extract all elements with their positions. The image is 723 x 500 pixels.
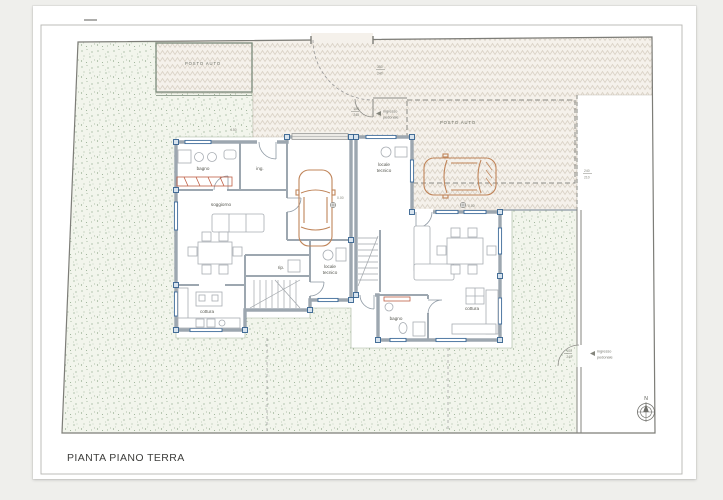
misc-dim-label: 4.50 xyxy=(230,128,237,132)
gate-top-label-1: ingresso xyxy=(383,110,397,114)
left-unit: bagno ing. soggiorno cottura rip. locale… xyxy=(174,134,351,332)
room-label-bagno-left: bagno xyxy=(197,166,210,171)
carport-dim-width: 240 xyxy=(584,169,590,173)
gate-top-label-2: pedonale xyxy=(383,116,399,120)
carport-dim: 240 210 xyxy=(583,169,592,180)
north-needle-icon xyxy=(643,404,649,412)
gate-right-height: 240 xyxy=(566,355,572,359)
driveway-gate-height: 240 xyxy=(377,72,383,76)
parking-left-label: POSTO AUTO xyxy=(185,61,221,66)
gate-top-height: 240 xyxy=(353,113,359,117)
room-label-rip: rip. xyxy=(278,265,284,270)
parking-right-label: POSTO AUTO xyxy=(440,120,476,125)
gate-right-label-2: pedonale xyxy=(597,356,613,360)
room-label-locale-left-2: tecnico xyxy=(323,270,338,275)
north-label: N xyxy=(644,396,648,402)
level-right-value: 0.00 xyxy=(468,204,475,208)
room-label-locale-right-2: tecnico xyxy=(377,168,392,173)
driveway-gate-width: 350 xyxy=(377,65,383,69)
east-fence xyxy=(577,95,581,433)
room-label-cottura-right: cottura xyxy=(465,306,479,311)
drawing-title: PIANTA PIANO TERRA xyxy=(67,452,185,464)
gate-right-label-1: ingresso xyxy=(597,350,611,354)
room-label-locale-right-1: locale xyxy=(378,162,390,167)
level-marker-right: 0.00 xyxy=(460,202,474,208)
gate-right-arrow-icon xyxy=(590,351,595,356)
drawing-page: POSTO AUTO POSTO AUTO 350 240 xyxy=(0,0,723,500)
level-left-value: 0.00 xyxy=(337,196,344,200)
room-label-locale-left-1: locale xyxy=(324,264,336,269)
room-label-bagno-right: bagno xyxy=(390,316,403,321)
gate-top-width: 100 xyxy=(353,107,359,111)
floor-plan-svg: POSTO AUTO POSTO AUTO 350 240 xyxy=(0,0,723,500)
room-label-cottura-left: cottura xyxy=(200,309,214,314)
gate-right-width: 100 xyxy=(566,349,572,353)
room-label-soggiorno: soggiorno xyxy=(211,202,232,207)
north-compass: N xyxy=(637,396,655,422)
carport-dim-height: 210 xyxy=(584,176,590,180)
room-label-ing: ing. xyxy=(256,166,263,171)
